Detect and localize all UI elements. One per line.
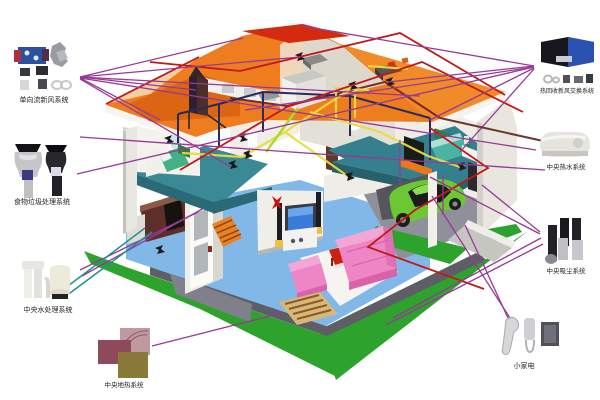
svg-text:食物垃圾处理系统: 食物垃圾处理系统 (14, 197, 70, 206)
svg-text:中央水处理系统: 中央水处理系统 (24, 305, 73, 314)
svg-text:中央吸尘系统: 中央吸尘系统 (547, 266, 587, 275)
svg-text:中央热水系统: 中央热水系统 (547, 162, 587, 171)
svg-text:中央地热系统: 中央地热系统 (105, 380, 145, 389)
svg-text:小家电: 小家电 (514, 361, 535, 370)
svg-text:单向流新风系统: 单向流新风系统 (20, 95, 69, 104)
svg-text:热回收新风交换系统: 热回收新风交换系统 (540, 87, 594, 95)
